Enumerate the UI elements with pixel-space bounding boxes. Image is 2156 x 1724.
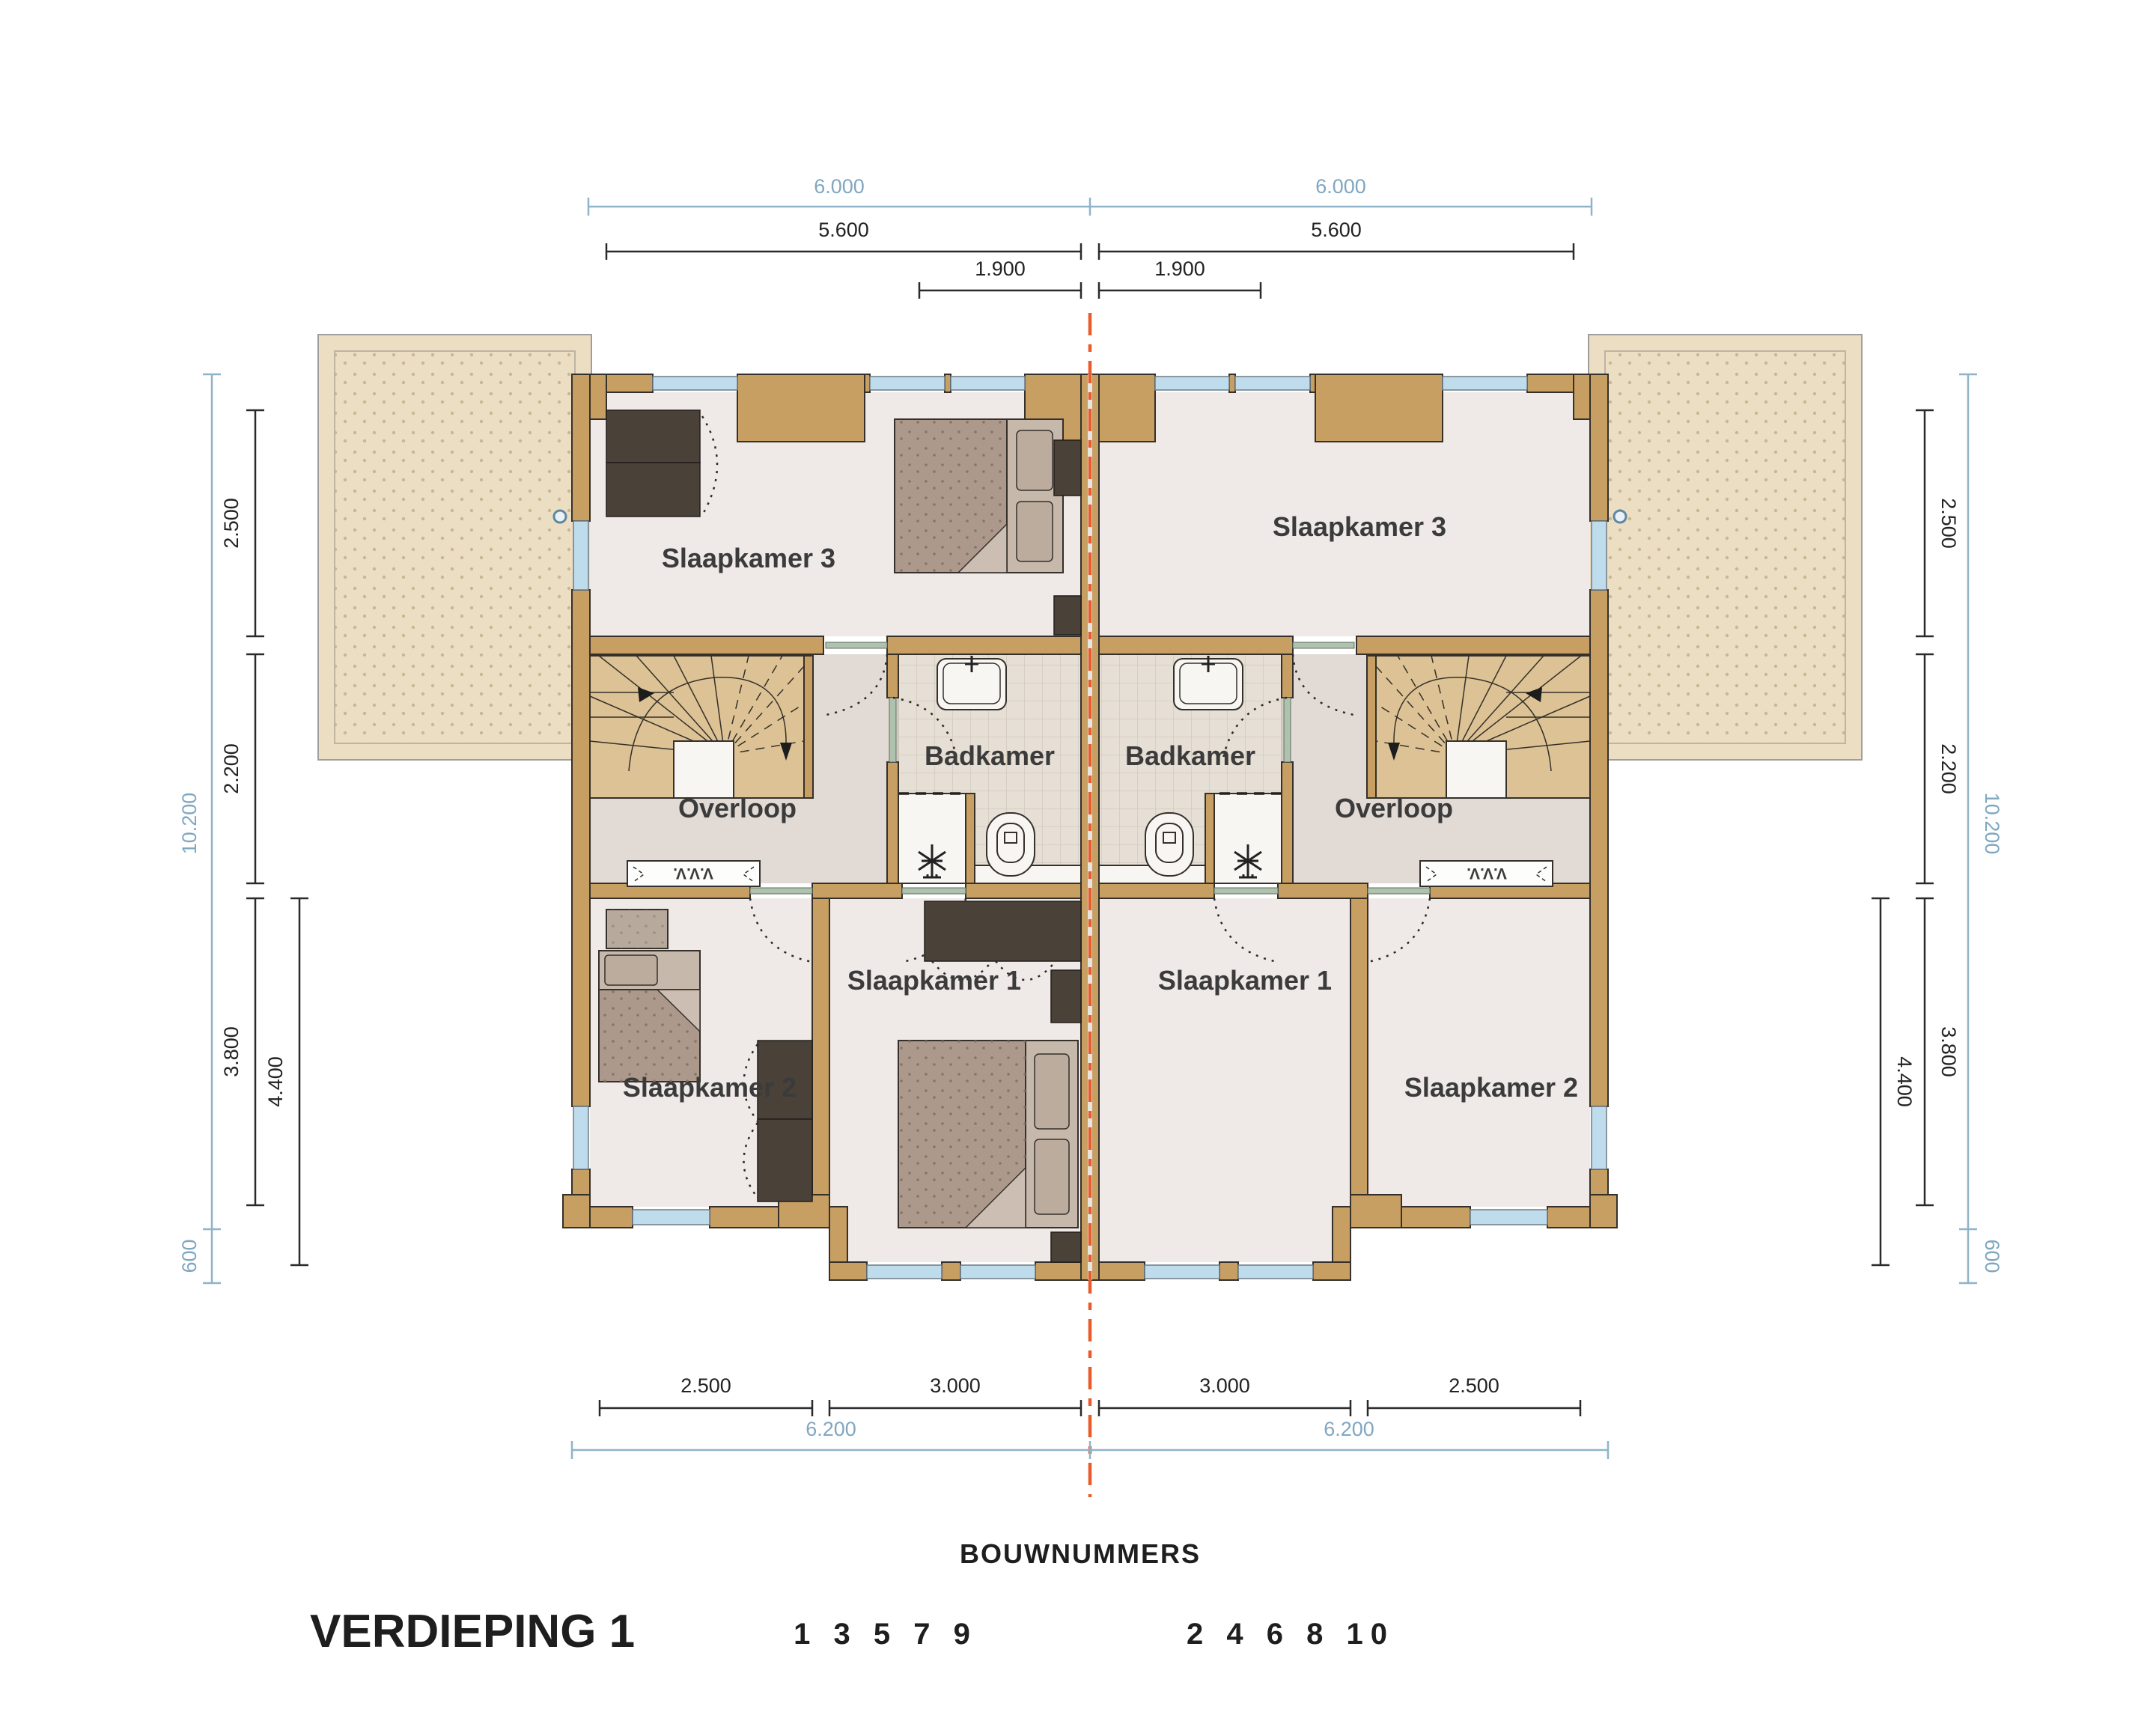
room-label: Slaapkamer 3 [1273,511,1446,542]
room-label: Badkamer [925,740,1055,771]
dimension-label: 6.000 [814,175,865,198]
room-label: Slaapkamer 1 [847,965,1021,996]
dimension-label: 6.000 [1315,175,1366,198]
dimension-label: 2.500 [220,498,243,549]
room-label: Slaapkamer 2 [1404,1072,1578,1103]
room-label: Slaapkamer 2 [623,1072,797,1103]
dimensions-right: 10.200 600 2.500 2.200 3.800 4.400 [1872,374,2003,1283]
roof-terrace-right [1589,335,1862,760]
room-label: Overloop [678,793,797,823]
dimension-label: 6.200 [806,1418,856,1440]
dimension-label: 2.200 [220,743,243,794]
dimension-label: 3.000 [1199,1374,1250,1397]
dimension-label: 1.900 [975,258,1026,280]
roof-terrace-left [318,335,591,760]
bouwnummers-heading: BOUWNUMMERS [960,1538,1201,1569]
dimension-label: 5.600 [818,219,869,241]
bouwnummers-even: 2 4 6 8 10 [1187,1618,1395,1651]
room-label: Slaapkamer 3 [662,543,835,573]
dimensions-top: 6.000 6.000 5.600 5.600 1.900 1.900 [588,175,1592,299]
dimension-label: 2.500 [1937,498,1960,549]
floor-plan-page: Slaapkamer 3 Badkamer Overloop Slaapkame… [0,0,2156,1724]
drain-icon [1614,511,1626,523]
dimension-label: 5.600 [1311,219,1362,241]
dimension-label: 600 [1981,1239,2003,1273]
room-label: Badkamer [1125,740,1255,771]
dimension-label: 600 [178,1239,201,1273]
dimensions-left: 10.200 600 2.500 2.200 3.800 4.400 [178,374,308,1283]
dimension-label: 2.500 [1449,1374,1499,1397]
house-right [1090,374,1617,1280]
dimension-label: 3.000 [930,1374,981,1397]
bouwnummers-odd: 1 3 5 7 9 [794,1618,978,1651]
dimension-label: 4.400 [1893,1056,1916,1107]
dimension-label: 3.800 [1937,1026,1960,1077]
dimension-label: 2.200 [1937,743,1960,794]
dimension-label: 6.200 [1324,1418,1374,1440]
page-title: VERDIEPING 1 [310,1606,635,1657]
vent-unit-label: V.V.V. [673,865,713,882]
drain-icon [554,511,566,523]
dimension-label: 1.900 [1154,258,1205,280]
dimension-label: 3.800 [220,1026,243,1077]
room-label: Slaapkamer 1 [1158,965,1332,996]
floor-plan-drawing: Slaapkamer 3 Badkamer Overloop Slaapkame… [0,0,2156,1724]
wardrobe [925,901,1081,961]
dimension-label: 10.200 [1981,793,2003,855]
dimension-label: 10.200 [178,793,201,855]
footer: VERDIEPING 1 BOUWNUMMERS 1 3 5 7 9 2 4 6… [310,1538,1395,1657]
dimension-label: 2.500 [680,1374,731,1397]
dimension-label: 4.400 [264,1056,287,1107]
vent-unit-label: V.V.V. [1467,865,1507,882]
room-label: Overloop [1335,793,1453,823]
